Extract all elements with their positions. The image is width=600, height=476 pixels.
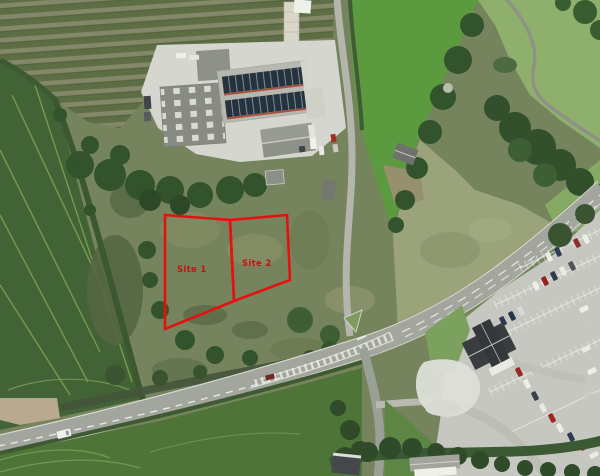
- white-house: [409, 454, 460, 476]
- tree-shadow: [493, 57, 517, 73]
- site2-label: Site 2: [242, 259, 272, 269]
- ruin: [265, 170, 284, 186]
- warehouse: [160, 83, 226, 147]
- aerial-photo-screenshot: Site 1 Site 2: [0, 0, 600, 476]
- white-roof: [294, 0, 312, 14]
- dark-roof-building: [331, 453, 361, 476]
- site1-label: Site 1: [177, 265, 207, 275]
- small-outbuilding: [321, 179, 337, 201]
- annex-roof: [304, 87, 326, 119]
- solar-roof: [217, 60, 313, 123]
- aerial-photo: Site 1 Site 2: [0, 0, 600, 476]
